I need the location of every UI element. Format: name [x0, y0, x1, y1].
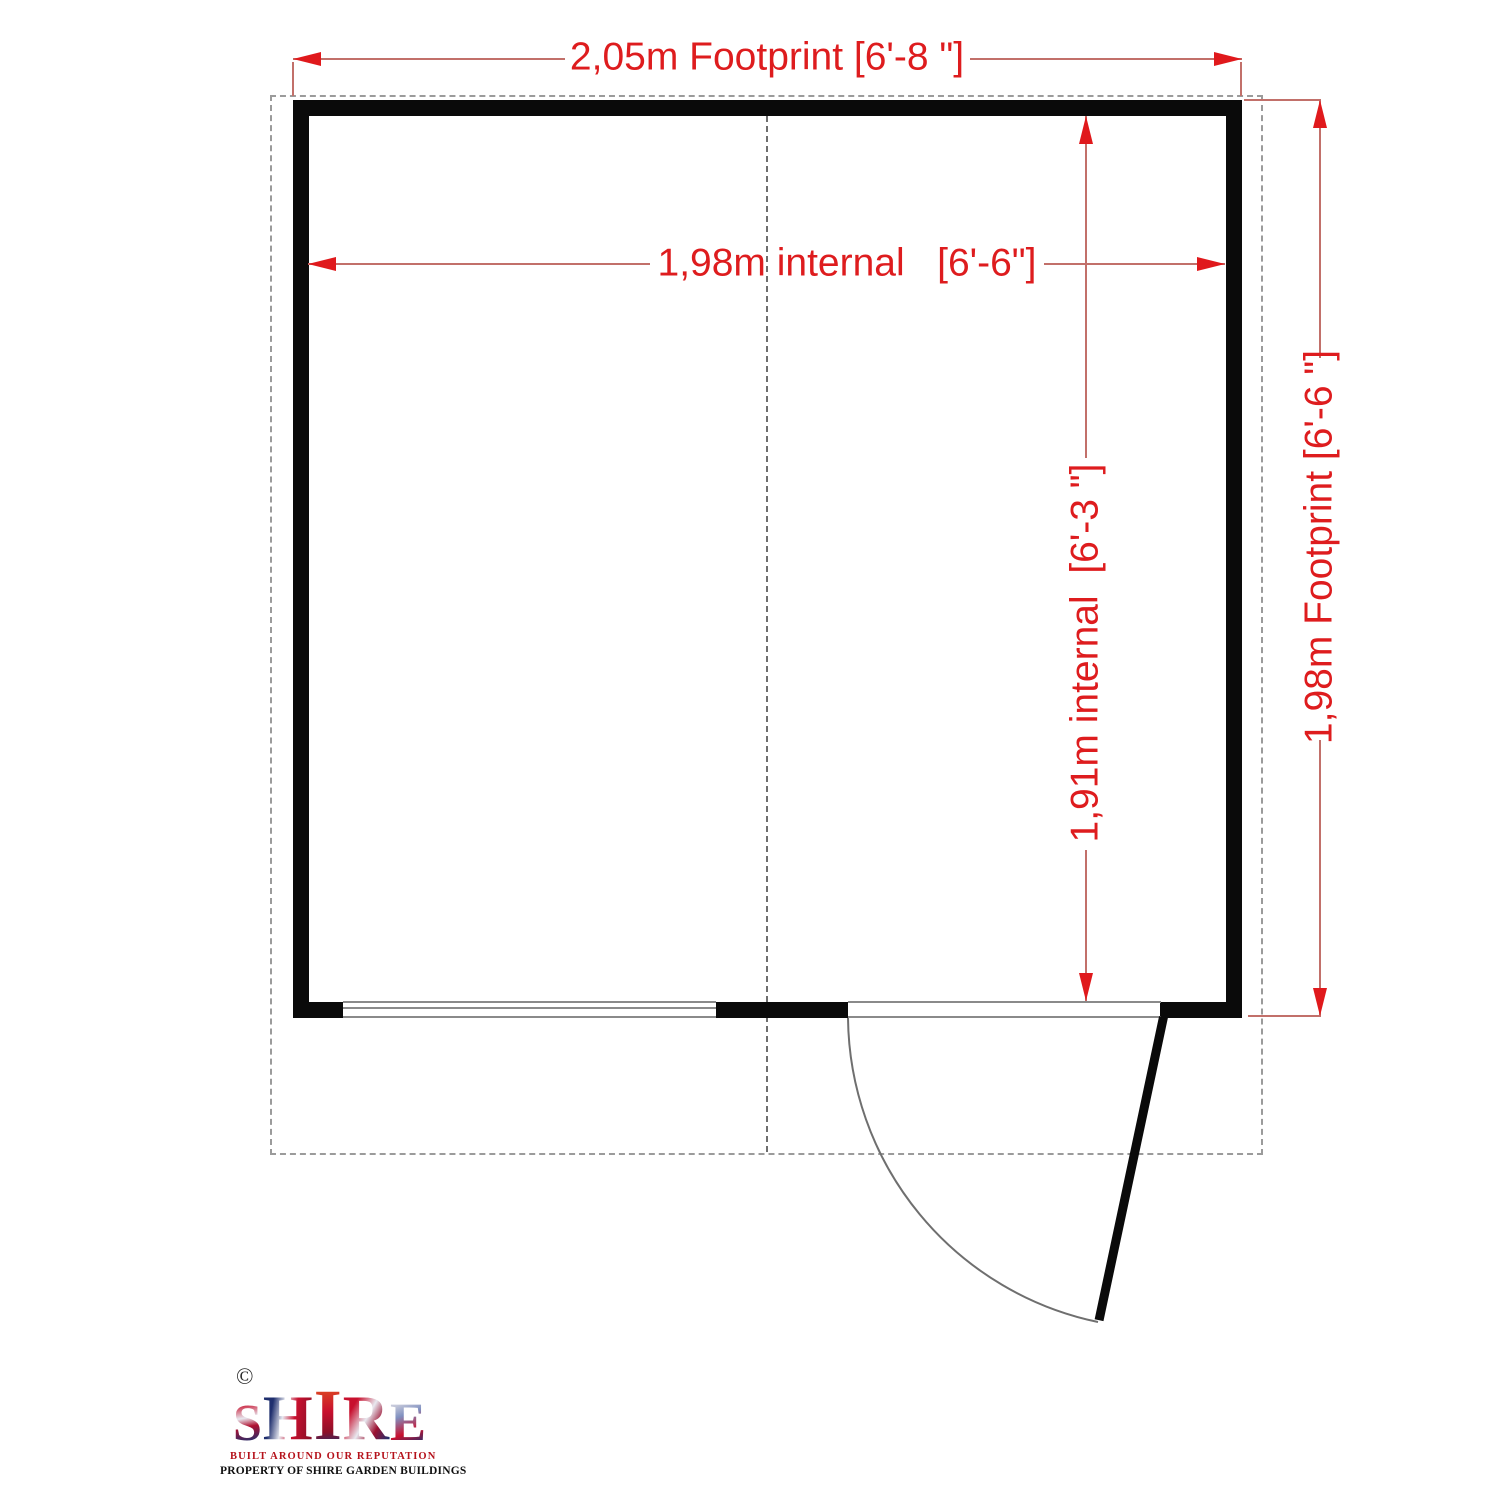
- brand-tagline: BUILT AROUND OUR REPUTATION: [230, 1451, 430, 1462]
- dim-depth-footprint-ext-top: [1244, 99, 1321, 101]
- arrow-right-icon: [1197, 257, 1225, 271]
- dim-width-footprint-ext-left: [292, 62, 294, 96]
- dim-depth-footprint-line-top: [1319, 100, 1321, 358]
- brand-letter: E: [390, 1398, 427, 1448]
- dim-depth-internal-label: 1,91m internal [6'-3 "]: [1066, 464, 1107, 843]
- brand-property-line: PROPERTY OF SHIRE GARDEN BUILDINGS: [220, 1465, 440, 1477]
- brand-letter: H: [263, 1389, 314, 1448]
- floor-plan: 2,05m Footprint [6'-8 "] 1,98m internal …: [0, 0, 1500, 1500]
- dim-width-footprint-label: 2,05m Footprint [6'-8 "]: [570, 38, 964, 79]
- arrow-down-icon: [1079, 973, 1093, 1001]
- arrow-down-icon: [1313, 988, 1327, 1016]
- wall-left: [293, 100, 309, 1018]
- door-threshold-outer-line: [848, 1001, 1161, 1003]
- window-inner-line: [343, 1016, 716, 1018]
- dim-width-footprint-ext-right: [1240, 62, 1242, 96]
- dim-depth-footprint-label: 1,98m Footprint [6'-6 "]: [1300, 350, 1341, 744]
- arrow-up-icon: [1079, 116, 1093, 144]
- dim-depth-footprint-ext-bottom: [1248, 1015, 1321, 1017]
- wall-bottom-mid-segment: [716, 1002, 848, 1018]
- brand-logo: © S H I R E BUILT AROUND OUR REPUTATION …: [230, 1358, 430, 1490]
- dim-width-internal-label: 1,98m internal [6'-6"]: [658, 244, 1037, 285]
- wall-top: [293, 100, 1242, 116]
- arrow-right-icon: [1214, 52, 1242, 66]
- brand-letter: I: [314, 1382, 343, 1448]
- dim-width-internal-line-left: [308, 263, 650, 265]
- dim-depth-internal-line-top: [1085, 116, 1087, 458]
- brand-letter: S: [233, 1400, 263, 1448]
- arrow-up-icon: [1313, 100, 1327, 128]
- dim-width-footprint-line-right: [970, 58, 1242, 60]
- door-swing-arc: [840, 1008, 1180, 1338]
- wall-right: [1226, 100, 1242, 1018]
- wall-bottom-left-segment: [293, 1002, 343, 1018]
- dim-width-footprint-line-left: [293, 58, 565, 60]
- brand-letter: R: [343, 1389, 390, 1448]
- window-glazing-line: [343, 1007, 716, 1009]
- brand-wordmark: S H I R E: [230, 1372, 430, 1448]
- dim-depth-footprint-line-bottom: [1319, 740, 1321, 1016]
- arrow-left-icon: [308, 257, 336, 271]
- window-outer-line: [343, 1001, 716, 1003]
- arrow-left-icon: [293, 52, 321, 66]
